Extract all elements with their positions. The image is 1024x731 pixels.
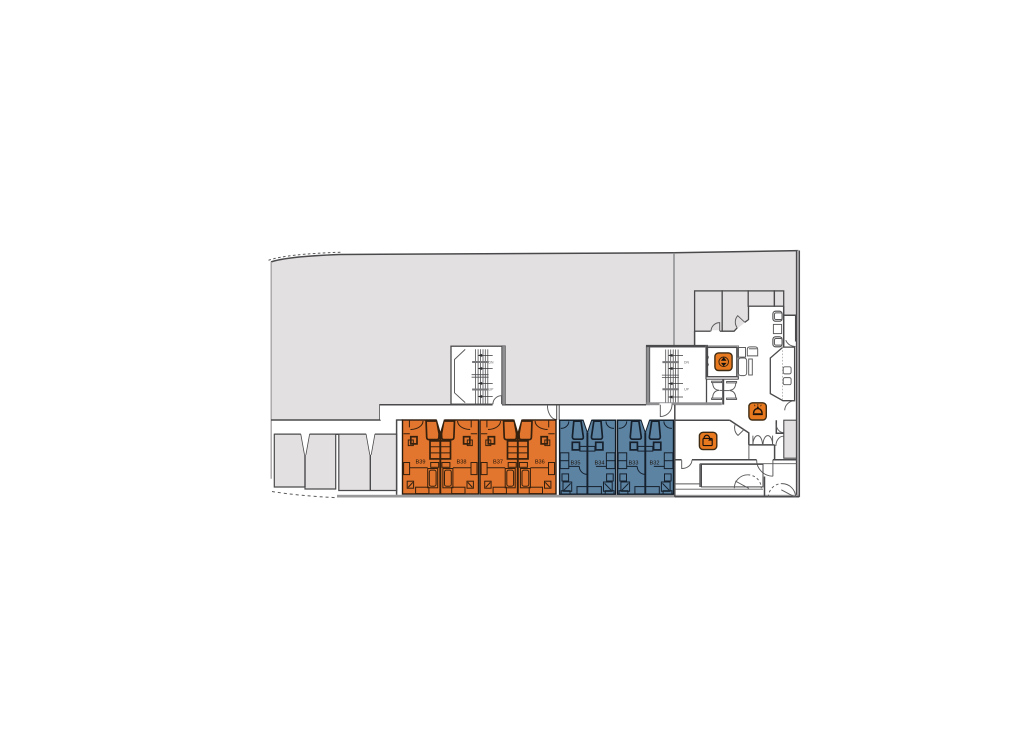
svg-text:DN: DN: [489, 360, 494, 364]
svg-text:DN: DN: [684, 360, 689, 364]
svg-text:B39: B39: [416, 459, 426, 465]
svg-text:B36: B36: [535, 459, 545, 465]
svg-text:B37: B37: [493, 459, 503, 465]
svg-text:B35: B35: [571, 461, 581, 467]
svg-text:B33: B33: [629, 461, 639, 467]
svg-text:UP: UP: [489, 388, 494, 392]
svg-text:B32: B32: [650, 461, 660, 467]
svg-text:B34: B34: [595, 461, 605, 467]
svg-text:B38: B38: [457, 459, 467, 465]
svg-text:UP: UP: [684, 388, 689, 392]
